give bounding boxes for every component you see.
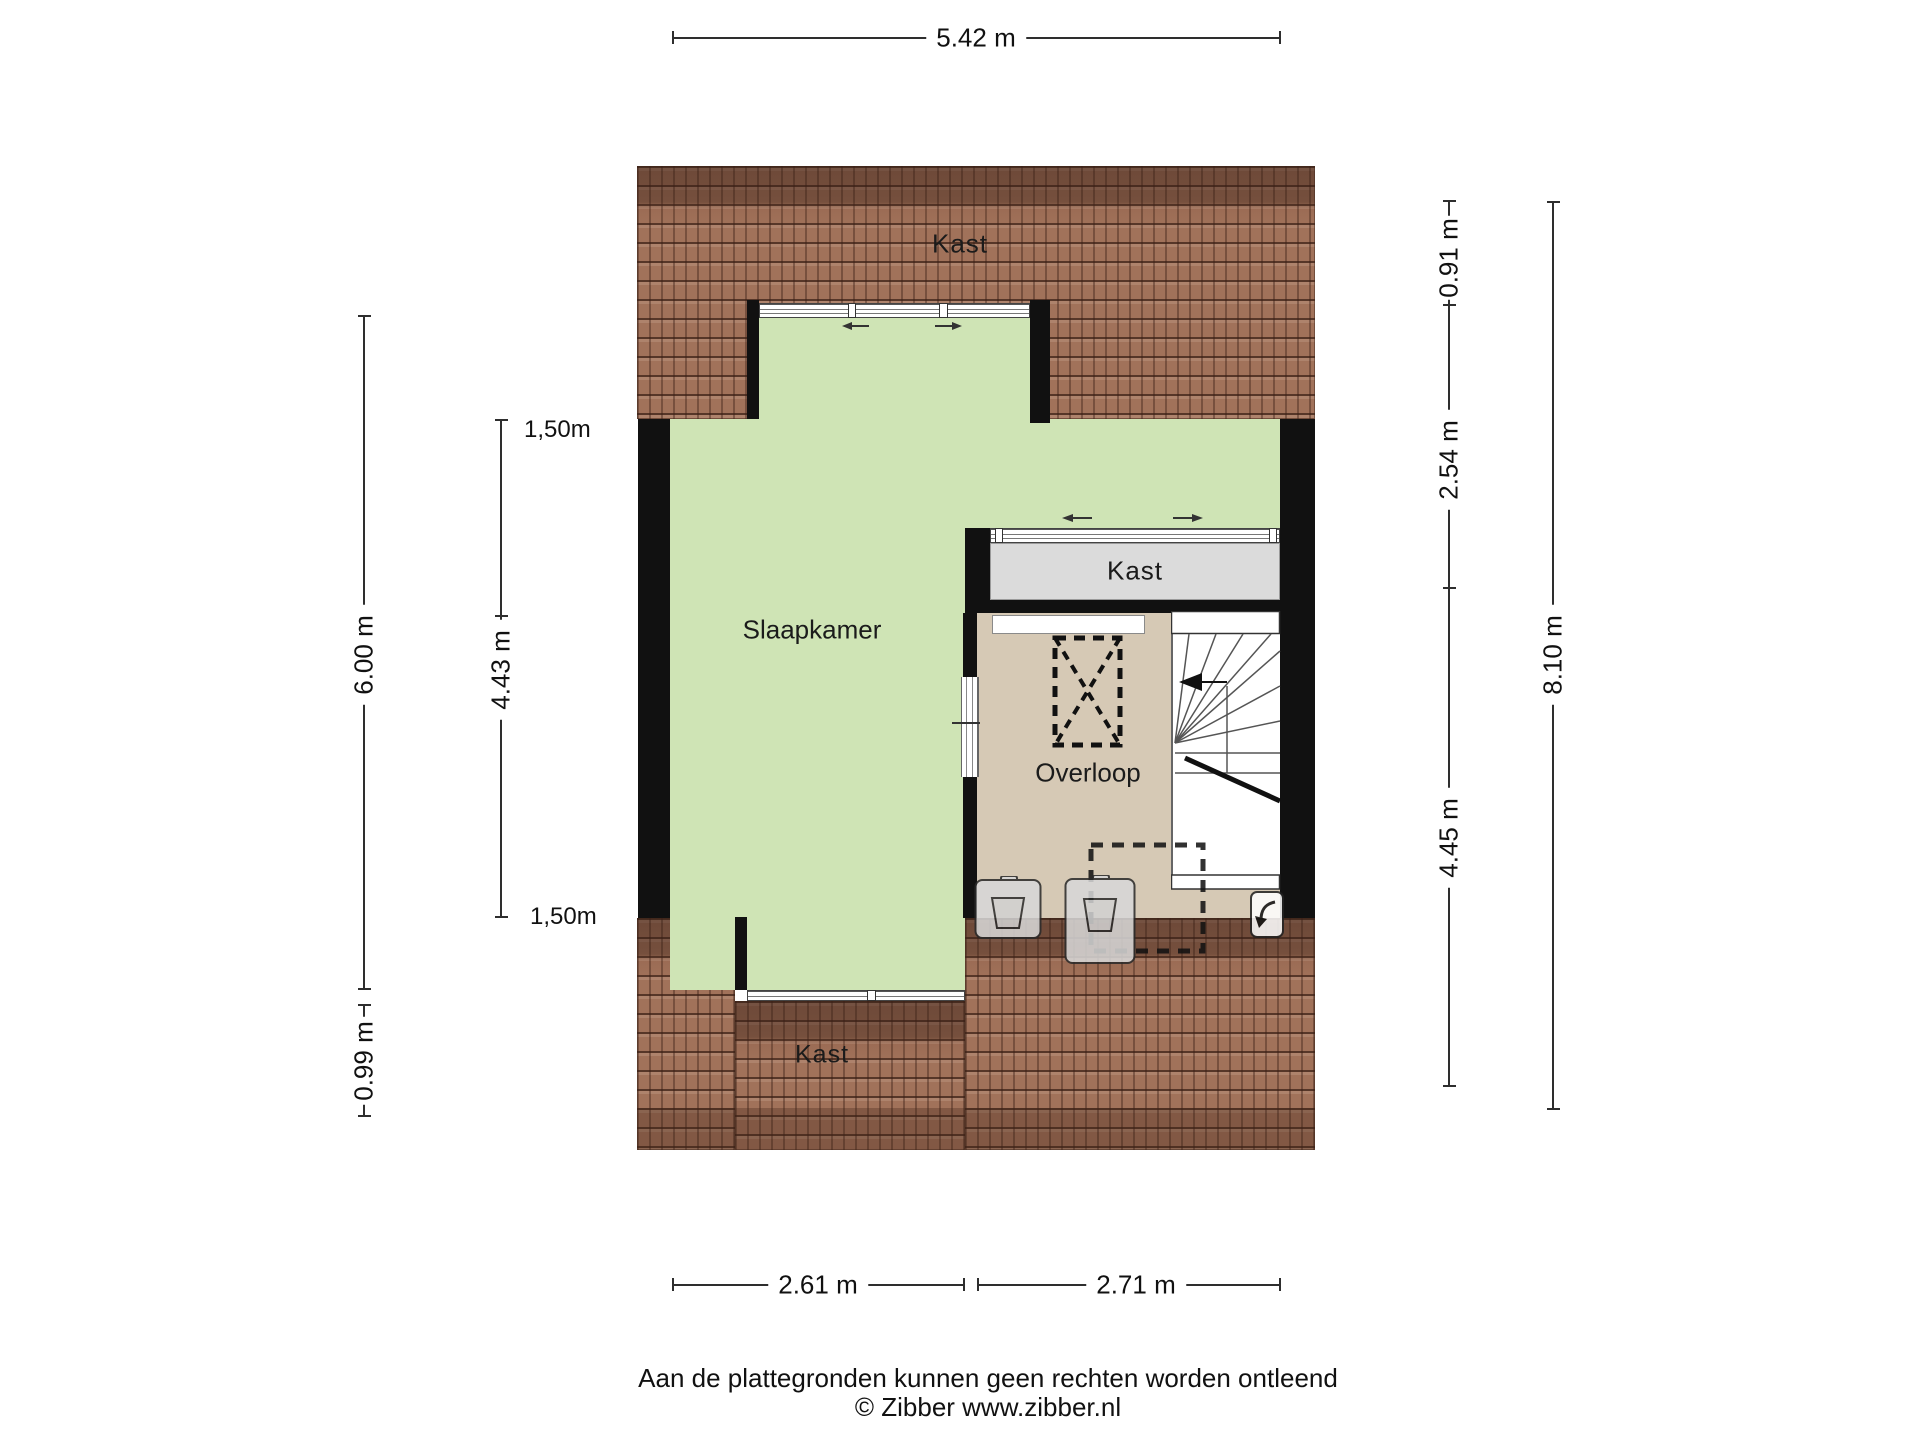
- dormer-post-top-right: [1030, 300, 1050, 423]
- room-label-closet-top: Kast: [932, 229, 988, 260]
- slide-arrow-right-icon: [934, 320, 962, 332]
- footer: Aan de plattegronden kunnen geen rechten…: [488, 1364, 1488, 1422]
- dim-label-right-inner-middle: 2.54 m: [1434, 410, 1465, 510]
- door-threshold-line: [952, 722, 980, 724]
- dim-tick: [1547, 1108, 1560, 1110]
- slide-arrow-left-icon: [1062, 512, 1093, 524]
- dim-label-right-inner-bottom: 4.45 m: [1434, 788, 1465, 888]
- sink-right: [1064, 875, 1136, 966]
- window-mullion: [1269, 528, 1277, 543]
- dim-tick: [1443, 200, 1456, 202]
- room-label-bedroom: Slaapkamer: [743, 615, 882, 646]
- room-label-closet-middle: Kast: [1107, 556, 1163, 587]
- dim-tick: [495, 916, 508, 918]
- window-top-dormer: [759, 303, 1030, 318]
- dim-tick: [672, 1278, 674, 1291]
- window-mullion: [995, 528, 1003, 543]
- ventilation-unit: [1250, 891, 1284, 938]
- dim-tick: [1279, 1278, 1281, 1291]
- dormer-post-bottom: [735, 917, 747, 990]
- dim-tick: [495, 615, 508, 617]
- dim-label-left-outer-small: 0.99 m: [349, 1017, 380, 1105]
- window-closet-middle: [990, 528, 1280, 543]
- dim-tick: [1443, 1085, 1456, 1087]
- floorplan-page: Kast Slaapkamer Kast Overloop Kast 5.42 …: [0, 0, 1920, 1440]
- dim-label-top-width: 5.42 m: [926, 23, 1026, 54]
- dim-label-left-inner: 4.43 m: [486, 620, 517, 720]
- dormer-post-top-left: [747, 300, 759, 419]
- roof-shading-band: [637, 1108, 1315, 1150]
- dim-tick: [1547, 201, 1560, 203]
- door-bedroom-landing: [961, 677, 979, 777]
- dim-tick: [495, 419, 508, 421]
- knee-height-label-bottom: 1,50m: [530, 903, 597, 931]
- window-mullion: [867, 990, 876, 1001]
- closet-middle-opening: [992, 615, 1145, 634]
- window-mullion: [848, 303, 856, 318]
- dim-tick: [672, 31, 674, 44]
- dim-tick: [358, 315, 371, 317]
- dim-label-left-outer: 6.00 m: [349, 605, 380, 705]
- wall-left: [638, 419, 670, 918]
- knee-height-label-top: 1,50m: [524, 416, 591, 444]
- dim-tick: [977, 1278, 979, 1291]
- dim-tick: [358, 1115, 371, 1117]
- slide-arrow-right-icon: [1172, 512, 1203, 524]
- dim-tick: [358, 988, 371, 990]
- dim-label-right-outer: 8.10 m: [1538, 605, 1569, 705]
- footer-copyright: © Zibber www.zibber.nl: [488, 1393, 1488, 1422]
- slide-arrow-left-icon: [842, 320, 870, 332]
- room-label-closet-bottom: Kast: [795, 1041, 849, 1070]
- dim-tick: [358, 1004, 371, 1006]
- bedroom-floor-main: [670, 528, 965, 990]
- footer-disclaimer: Aan de plattegronden kunnen geen rechten…: [488, 1364, 1488, 1393]
- wall-right: [1280, 419, 1315, 918]
- dim-tick: [963, 1278, 965, 1291]
- window-mullion: [939, 303, 948, 318]
- dashed-x-marker: [1052, 635, 1123, 748]
- dim-label-bottom-right: 2.71 m: [1086, 1270, 1186, 1301]
- dim-label-bottom-left: 2.61 m: [768, 1270, 868, 1301]
- dim-label-right-inner-top: 0.91 m: [1434, 216, 1465, 300]
- bedroom-floor-dormer: [759, 318, 1030, 419]
- window-bottom-dormer: [747, 990, 965, 1001]
- dim-tick: [1279, 31, 1281, 44]
- room-label-landing: Overloop: [1035, 758, 1141, 789]
- sink-left: [974, 876, 1042, 940]
